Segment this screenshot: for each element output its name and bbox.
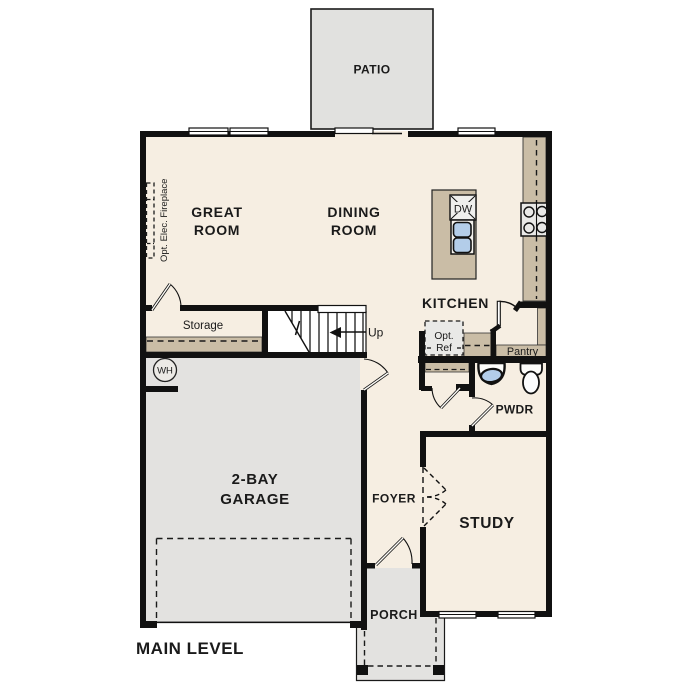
- svg-text:2-BAY: 2-BAY: [232, 471, 279, 488]
- svg-text:PWDR: PWDR: [496, 403, 534, 417]
- svg-text:DINING: DINING: [327, 204, 380, 220]
- svg-text:ROOM: ROOM: [331, 222, 377, 238]
- svg-text:Opt. Elec. Fireplace: Opt. Elec. Fireplace: [159, 179, 170, 262]
- svg-text:PATIO: PATIO: [354, 63, 391, 77]
- svg-text:MAIN LEVEL: MAIN LEVEL: [136, 639, 244, 658]
- svg-text:WH: WH: [157, 366, 173, 377]
- svg-text:PORCH: PORCH: [370, 608, 418, 622]
- svg-text:ROOM: ROOM: [194, 222, 240, 238]
- svg-text:Pantry: Pantry: [507, 346, 539, 358]
- svg-text:Up: Up: [368, 326, 384, 340]
- svg-text:KITCHEN: KITCHEN: [422, 295, 489, 311]
- svg-text:GARAGE: GARAGE: [220, 491, 289, 508]
- svg-text:Opt.: Opt.: [434, 331, 453, 342]
- svg-text:GREAT: GREAT: [191, 204, 242, 220]
- svg-text:Ref: Ref: [436, 343, 452, 354]
- svg-text:STUDY: STUDY: [459, 515, 515, 532]
- svg-text:Storage: Storage: [183, 320, 223, 332]
- svg-text:FOYER: FOYER: [372, 492, 416, 506]
- svg-text:DW: DW: [454, 204, 473, 216]
